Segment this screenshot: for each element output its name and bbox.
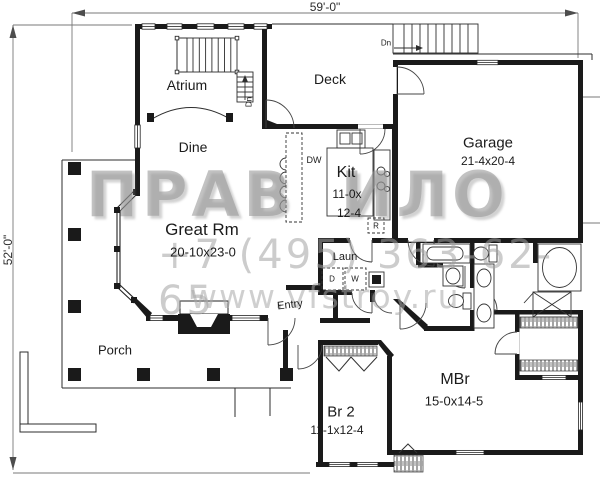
room-label-laundry: Laun: [333, 251, 357, 263]
room-label-deck: Deck: [314, 71, 346, 87]
room-label-dine: Dine: [179, 139, 208, 155]
room-label-great-room: Great Rm: [165, 220, 239, 240]
appliance-label-dryer: D: [329, 275, 335, 284]
bay-window-posts: [114, 189, 139, 303]
room-label-atrium: Atrium: [167, 77, 207, 93]
room-label-master-bedroom: MBr: [440, 371, 469, 389]
fireplace: [178, 301, 230, 334]
room-size-garage: 21-4x20-4: [461, 154, 515, 168]
floorplan-linework: [0, 0, 600, 477]
kitchen-fixtures: [280, 130, 390, 233]
appliance-label-washer: W: [351, 275, 359, 284]
bathroom-fixtures: [423, 244, 581, 328]
planter-wall: [20, 352, 96, 432]
dimension-height-label: 52'-0": [1, 235, 15, 266]
room-size-bedroom2: 11-1x12-4: [310, 423, 363, 437]
stairs-down-label-atrium: Dn: [245, 97, 254, 107]
appliance-label-dishwasher: DW: [307, 155, 322, 165]
room-label-porch: Porch: [98, 343, 132, 358]
room-label-bedroom2: Br 2: [327, 404, 355, 421]
room-label-garage: Garage: [463, 135, 513, 152]
room-size-master-bedroom: 15-0x14-5: [425, 394, 484, 409]
room-size-great-room: 20-10x23-0: [170, 245, 236, 260]
floor-plan: 59'-0" 52'-0" Atrium Dn Deck Dn Dine Gar…: [0, 0, 600, 477]
room-label-kitchen: Kit: [337, 164, 356, 182]
dimension-width-label: 59'-0": [310, 0, 341, 14]
arch-opening: [147, 108, 233, 123]
appliance-label-refrigerator: R: [373, 222, 379, 231]
room-size-kitchen-2: 12-4: [337, 206, 361, 220]
stairs-down-label-deck: Dn: [381, 39, 391, 48]
room-size-kitchen-1: 11-0x: [332, 187, 361, 201]
